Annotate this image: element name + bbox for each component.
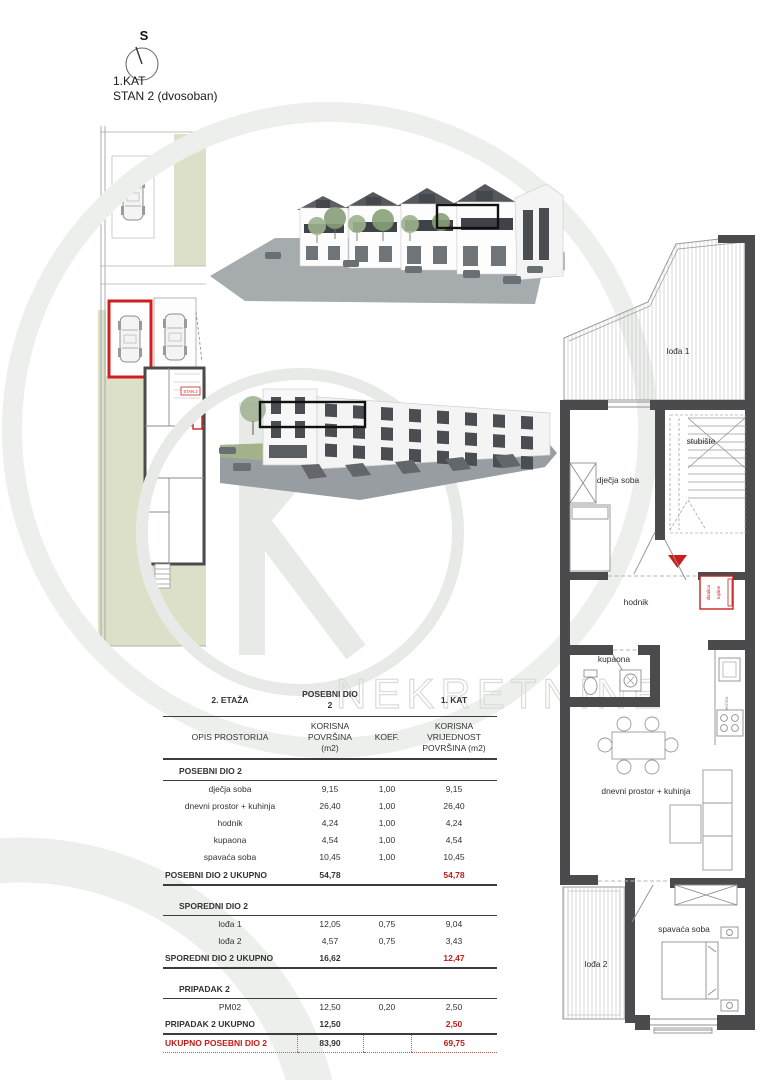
tree [240,396,266,422]
table-row: hodnik 4,24 1,00 4,24 [163,815,497,832]
loggia1-area [564,236,745,400]
compass-label: S [140,28,149,43]
section-header: SPOREDNI DIO 2 [163,895,497,916]
room-label-bathroom: kupaona [598,654,630,664]
header-kat: 1. KAT [411,686,497,717]
building-render-street [205,158,565,306]
loggia2-area [563,887,625,1019]
table-header-columns: OPIS PROSTORIJA KORISNA POVRŠINA (m2) KO… [163,717,497,760]
section-total-row: POSEBNI DIO 2 UKUPNO 54,78 54,78 [163,867,497,885]
col-korisna: KORISNA POVRŠINA (m2) [297,717,363,760]
table-header-top: 2. ETAŽA POSEBNI DIO 2 1. KAT [163,686,497,717]
col-opis: OPIS PROSTORIJA [163,717,297,760]
doors [598,532,698,922]
col-vrijednost: KORISNA VRIJEDNOST POVRŠINA (m2) [411,717,497,760]
building-render-rear [205,353,565,501]
row-houses [297,184,563,280]
bedroom-furniture [662,885,738,1011]
section-total-row: PRIPADAK 2 UKUPNO 12,50 2,50 [163,1016,497,1034]
stair-direction-arrow [668,555,687,568]
unit-label: STAN 2 (dvosoban) [113,89,218,104]
table-row: lođa 2 4,57 0,75 3,43 [163,933,497,950]
section-header: POSEBNI DIO 2 [163,759,497,781]
sofa [670,770,732,870]
table-row: PM02 12,50 0,20 2,50 [163,998,497,1016]
room-label-loggia1: lođa 1 [667,346,690,356]
table-row: kupaona 4,54 1,00 4,54 [163,832,497,849]
area-table: 2. ETAŽA POSEBNI DIO 2 1. KAT OPIS PROST… [163,686,497,1053]
floor-label: 1.KAT [113,74,218,89]
header-posebni-dio: POSEBNI DIO 2 [297,686,363,717]
section-header: PRIPADAK 2 [163,978,497,999]
bathroom-fixtures [584,670,641,695]
dining-set [598,717,678,774]
header-etaza: 2. ETAŽA [163,686,297,717]
kitchen: pećnica [715,650,743,745]
heat-pump-label-2: topline [716,585,721,599]
grand-total-row: UKUPNO POSEBNI DIO 2 83,90 69,75 [163,1034,497,1053]
room-label-staircase: stubište [687,436,716,446]
plan-sheet: NEKRETNINE S 1.KAT STAN 2 (dvosoban) [0,0,764,1080]
room-label-hallway: hodnik [624,597,649,607]
heat-pump-label-1: dizalica [706,585,711,601]
oven-label: pećnica [724,696,729,711]
room-label-loggia2: lođa 2 [585,959,608,969]
heat-pump-box: dizalica topline [700,576,733,609]
end-building [515,184,563,280]
table-row: spavaća soba 10,45 1,00 10,45 [163,849,497,866]
col-koef: KOEF. [363,717,411,760]
sheet-title: 1.KAT STAN 2 (dvosoban) [113,74,218,104]
section-total-row: SPOREDNI DIO 2 UKUPNO 16,62 12,47 [163,950,497,968]
table-row: lođa 1 12,05 0,75 9,04 [163,915,497,933]
room-label-living-kitchen: dnevni prostor + kuhinja [601,786,690,796]
staircase [670,415,745,533]
table-row: dječja soba 9,15 1,00 9,15 [163,781,497,799]
room-label-bedroom: spavaća soba [658,924,710,934]
area-table-block: 2. ETAŽA POSEBNI DIO 2 1. KAT OPIS PROST… [163,686,497,1053]
room-label-childrens-room: dječja soba [597,475,640,485]
table-row: dnevni prostor + kuhinja 26,40 1,00 26,4… [163,798,497,815]
apartment-floor-plan: pećnica [558,230,764,1040]
